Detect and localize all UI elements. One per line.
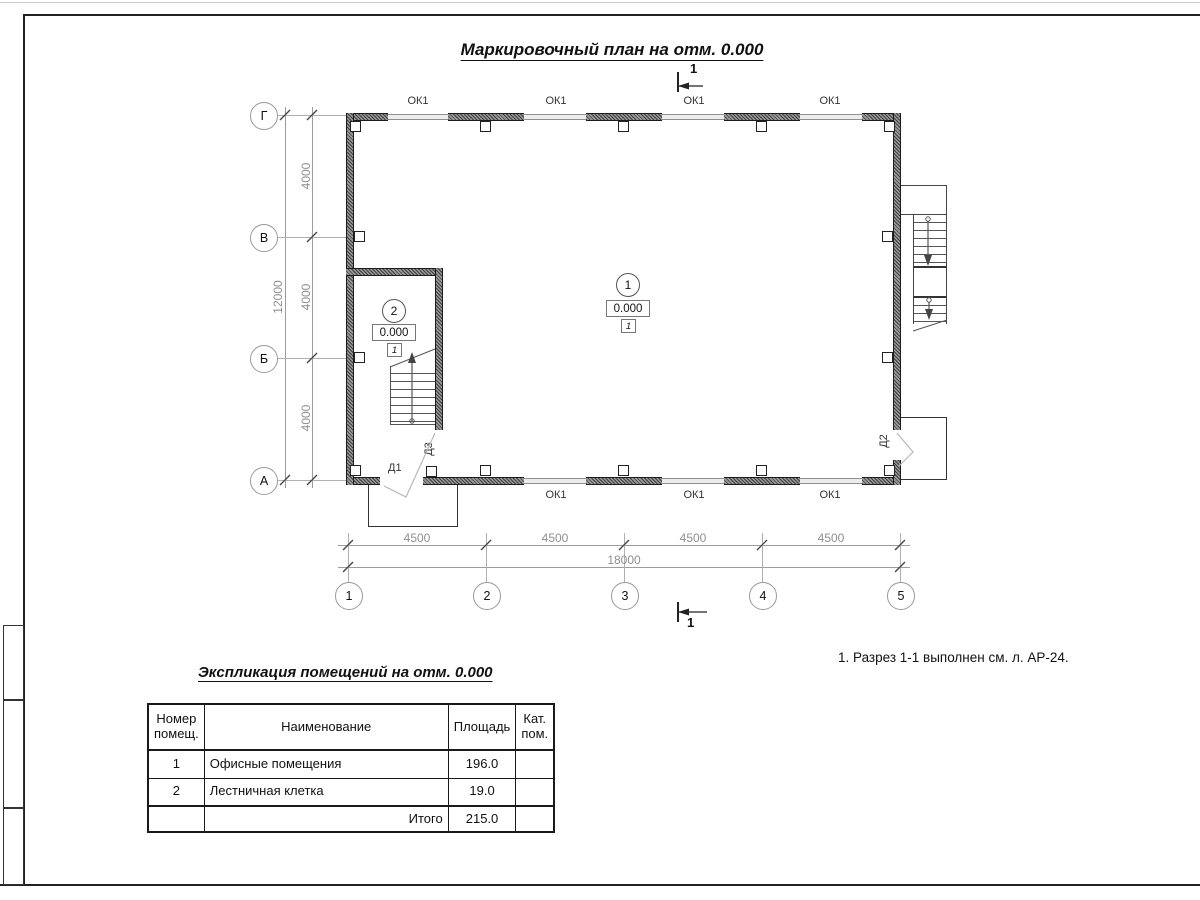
stair-flight — [390, 366, 435, 425]
entrance-porch — [368, 485, 458, 527]
room-cat-cell — [516, 778, 554, 806]
door-swing-lines — [384, 433, 913, 497]
column-mark — [350, 465, 361, 476]
total-area-cell: 215.0 — [448, 806, 516, 832]
column-mark — [354, 352, 365, 363]
table-row: 1 Офисные помещения 196.0 — [148, 750, 554, 778]
window-label: ОК1 — [545, 95, 566, 107]
column-mark — [756, 465, 767, 476]
room-number-cell: 1 — [148, 750, 204, 778]
column-mark — [354, 231, 365, 242]
stair-landing — [913, 268, 947, 298]
grid-bubble-5: 5 — [887, 582, 915, 610]
plan-title: Маркировочный план на отм. 0.000 — [461, 40, 764, 60]
window-ok1 — [662, 114, 724, 120]
column-mark — [756, 121, 767, 132]
grid-bubble-4: 4 — [749, 582, 777, 610]
explication-table: Номер помещ. Наименование Площадь Кат. п… — [147, 703, 555, 833]
room-number-badge: 2 — [382, 299, 406, 323]
room-name-cell: Лестничная клетка — [204, 778, 448, 806]
column-mark — [480, 121, 491, 132]
room-area-cell: 19.0 — [448, 778, 516, 806]
window-label: ОК1 — [819, 489, 840, 501]
col-header-name: Наименование — [204, 704, 448, 750]
dimension-line — [285, 107, 286, 488]
margin-stamp-cell — [3, 808, 24, 885]
stair-flight — [913, 215, 947, 268]
window-ok1 — [524, 478, 586, 484]
column-mark — [884, 121, 895, 132]
frame-bottom — [0, 884, 1200, 886]
room-name-cell: Офисные помещения — [204, 750, 448, 778]
grid-bubble-g: Г — [250, 102, 278, 130]
section-label: 1 — [687, 615, 694, 630]
margin-stamp-cell — [3, 700, 24, 808]
wall-bottom — [724, 477, 800, 485]
room-area-cell: 196.0 — [448, 750, 516, 778]
dimension-value: 4500 — [404, 531, 431, 545]
door-label: Д2 — [878, 434, 890, 448]
window-ok1 — [524, 114, 586, 120]
table-row: 2 Лестничная клетка 19.0 — [148, 778, 554, 806]
door-jamb-mark — [426, 466, 437, 477]
wall-right — [893, 113, 901, 430]
grid-bubble-v: В — [250, 224, 278, 252]
window-label: ОК1 — [683, 489, 704, 501]
margin-stamp-cell — [3, 625, 24, 700]
grid-line — [900, 533, 901, 582]
col-header-cat: Кат. пом. — [516, 704, 554, 750]
drawing-note: 1. Разрез 1-1 выполнен см. л. АР-24. — [838, 650, 1069, 665]
stairwell-wall — [346, 268, 443, 276]
grid-line — [276, 480, 346, 481]
window-ok1 — [800, 478, 862, 484]
grid-line — [276, 358, 346, 359]
grid-bubble-a: А — [250, 467, 278, 495]
grid-bubble-3: 3 — [611, 582, 639, 610]
column-mark — [884, 465, 895, 476]
column-mark — [350, 121, 361, 132]
grid-line — [348, 533, 349, 582]
room-elevation: 0.000 — [372, 324, 416, 341]
dimension-value: 4500 — [542, 531, 569, 545]
section-label: 1 — [690, 61, 697, 76]
window-ok1 — [800, 114, 862, 120]
dimension-value: 4500 — [818, 531, 845, 545]
column-mark — [882, 352, 893, 363]
column-mark — [480, 465, 491, 476]
grid-line — [276, 237, 346, 238]
door-label: Д1 — [388, 462, 402, 474]
dimension-value: 4500 — [680, 531, 707, 545]
grid-bubble-2: 2 — [473, 582, 501, 610]
side-porch — [901, 417, 947, 480]
col-header-area: Площадь — [448, 704, 516, 750]
column-mark — [882, 231, 893, 242]
grid-line — [276, 115, 346, 116]
room-cat-cell — [516, 750, 554, 778]
column-mark — [618, 465, 629, 476]
grid-line — [762, 533, 763, 582]
floor-type-badge: 1 — [387, 343, 402, 357]
drawing-sheet: Маркировочный план на отм. 0.000 — [0, 0, 1200, 900]
section-mark-line — [677, 72, 679, 92]
dimension-total: 18000 — [607, 553, 640, 567]
room-number-cell: 2 — [148, 778, 204, 806]
grid-line — [486, 533, 487, 582]
column-mark — [618, 121, 629, 132]
stair-flight — [913, 298, 947, 324]
window-ok1 — [388, 114, 448, 120]
table-title: Экспликация помещений на отм. 0.000 — [198, 664, 493, 681]
table-total-row: Итого 215.0 — [148, 806, 554, 832]
window-label: ОК1 — [545, 489, 566, 501]
room-number-badge: 1 — [616, 273, 640, 297]
col-header-number: Номер помещ. — [148, 704, 204, 750]
empty-cell — [516, 806, 554, 832]
room-elevation: 0.000 — [606, 300, 650, 317]
wall-top — [448, 113, 524, 121]
wall-left — [346, 113, 354, 485]
wall-top — [724, 113, 800, 121]
door-label: Д3 — [423, 442, 435, 456]
empty-cell — [148, 806, 204, 832]
section-mark-line — [677, 602, 679, 622]
stair-landing — [901, 185, 947, 215]
wall-bottom — [423, 477, 524, 485]
stairwell-wall — [435, 268, 443, 430]
dimension-value: 4000 — [299, 163, 313, 190]
dimension-value: 4000 — [299, 284, 313, 311]
grid-bubble-b: Б — [250, 345, 278, 373]
grid-bubble-1: 1 — [335, 582, 363, 610]
window-label: ОК1 — [407, 95, 428, 107]
dimension-value: 4000 — [299, 405, 313, 432]
window-label: ОК1 — [683, 95, 704, 107]
window-label: ОК1 — [819, 95, 840, 107]
sheet-edge-top — [0, 2, 1200, 3]
wall-top — [586, 113, 662, 121]
dimension-total: 12000 — [271, 280, 285, 313]
wall-bottom — [586, 477, 662, 485]
floor-type-badge: 1 — [621, 319, 636, 333]
window-ok1 — [662, 478, 724, 484]
total-label-cell: Итого — [204, 806, 448, 832]
frame-top — [23, 14, 1200, 16]
